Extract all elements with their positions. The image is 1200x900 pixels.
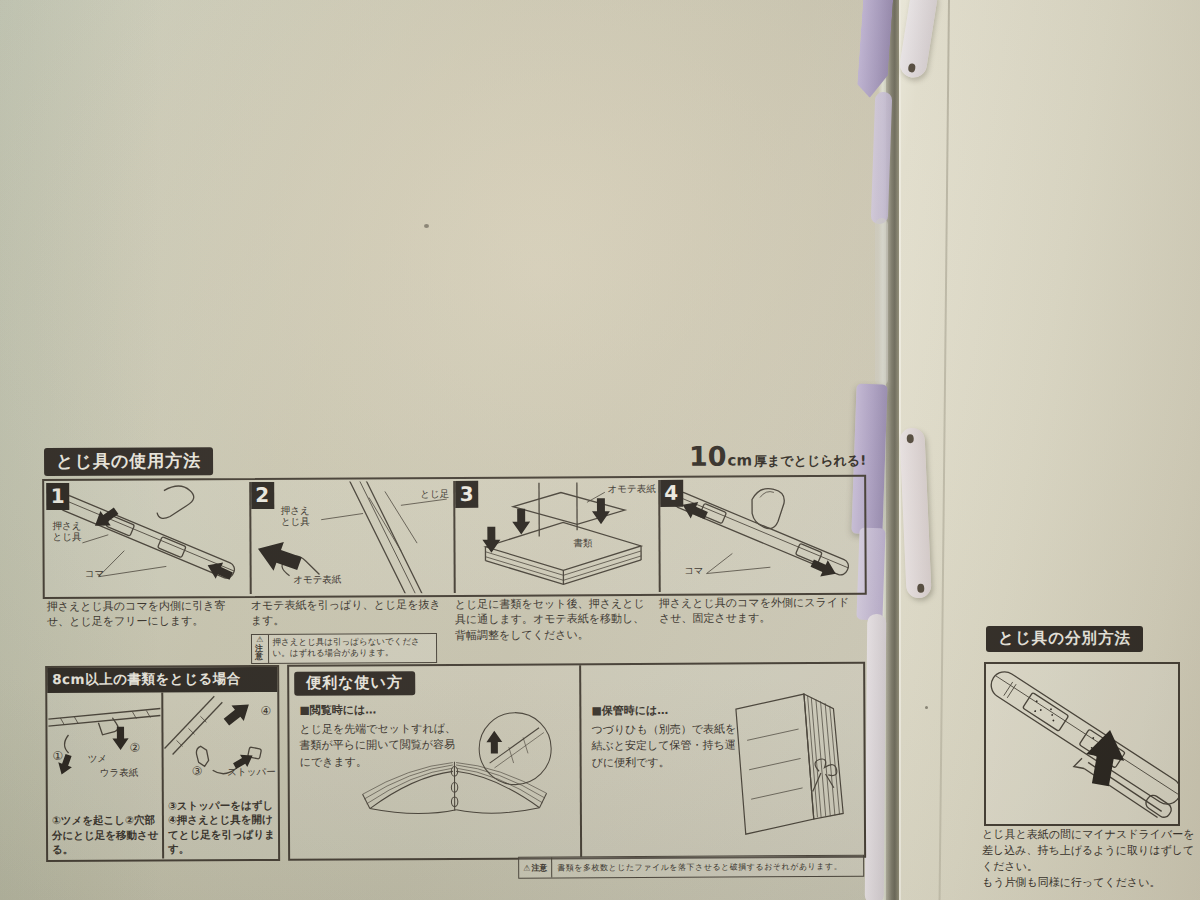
- separation-print-area: とじ具の分別方法: [0, 0, 1200, 900]
- photo-of-binder-instructions: とじ具の使用方法 10 cm 厚までとじられる! 1: [0, 0, 1200, 900]
- separation-illustration-box: [984, 662, 1180, 826]
- separation-caption: とじ具と表紙の間にマイナスドライバーを差し込み、持ち上げるように取りはずしてくだ…: [982, 827, 1196, 891]
- separation-section-title: とじ具の分別方法: [986, 626, 1143, 652]
- separation-illustration: [986, 664, 1178, 824]
